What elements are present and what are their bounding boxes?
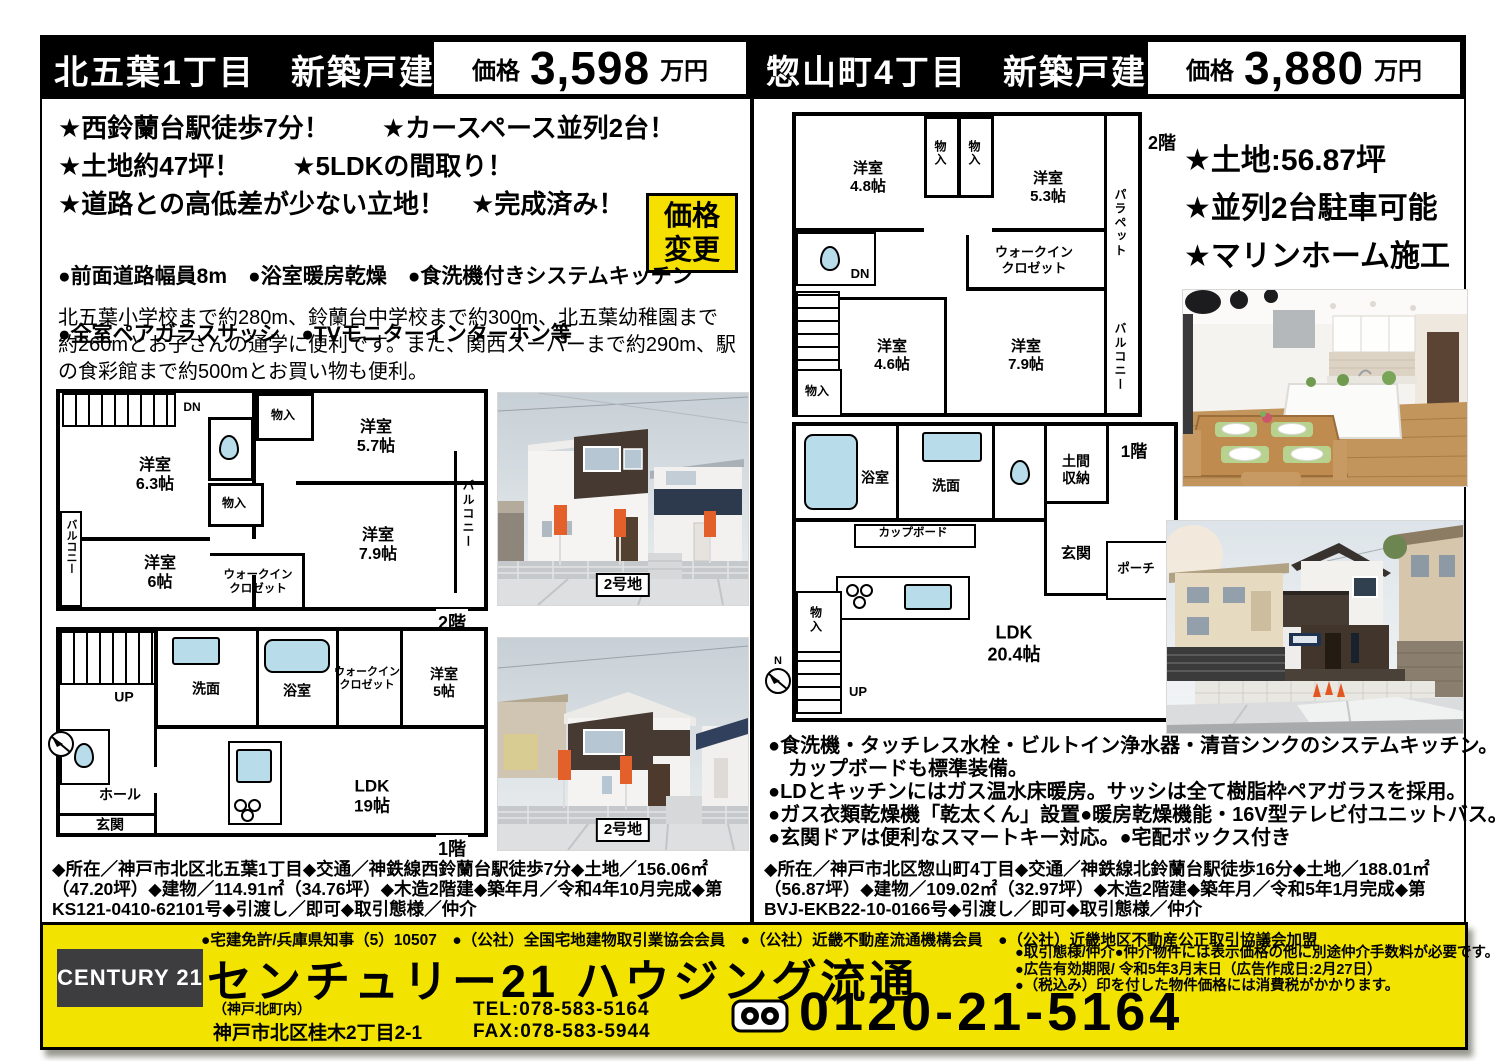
room-label: 洋室 4.6帖	[874, 338, 910, 374]
wall	[1044, 426, 1047, 518]
wall	[1104, 266, 1107, 413]
wall	[944, 297, 947, 413]
entrance-label: 玄関	[1061, 545, 1091, 563]
toilet-icon	[820, 246, 840, 271]
freedial-phone-icon	[731, 999, 789, 1033]
closet-label: 物入	[271, 408, 295, 422]
wall	[1104, 116, 1107, 266]
toilet-icon	[74, 743, 94, 768]
cupboard-label: カップボード	[879, 527, 948, 541]
right-property-title: 惣山町4丁目 新築戸建	[766, 45, 1147, 94]
toilet-icon	[219, 435, 239, 460]
price-unit: 万円	[660, 51, 708, 86]
room-label: 洋室 5.7帖	[357, 418, 395, 456]
price-label: 価格	[472, 51, 520, 86]
balcony-label: バルコニー	[460, 479, 477, 549]
left-exterior-photo-2: 2号地	[497, 637, 749, 851]
porch-label: ポーチ	[1117, 562, 1155, 577]
company-address: 神戸市北区桂木2丁目2-1	[213, 1018, 422, 1045]
toilet-icon	[1010, 460, 1030, 485]
wall	[400, 631, 403, 725]
bathtub	[264, 639, 330, 673]
bullet-line: ●LDとキッチンにはガス温水床暖房。サッシは全て樹脂枠ペアガラスを採用。	[768, 781, 1500, 804]
wall	[154, 631, 158, 725]
kitchen-sink	[904, 584, 952, 610]
freedial-number: 0120-21-5164	[799, 985, 1183, 1039]
right-1f-floorplan: 浴室 洗面 土間 収納 1階 カップボード 玄関 ポーチ 物 入 UP LDK …	[792, 422, 1178, 722]
exterior-photo-svg	[1167, 521, 1463, 733]
lot-number-label: 2号地	[596, 818, 650, 842]
wall	[154, 729, 157, 767]
floor-label-1f: 1階	[436, 835, 468, 861]
parapet-label: パラペット	[1112, 188, 1129, 258]
closet-label: 物 入	[810, 606, 822, 635]
left-property-panel: 北五葉1丁目 新築戸建 価格 3,598 万円 ★西鈴蘭台駅徒歩7分！ ★カース…	[40, 35, 752, 924]
stove-burner	[860, 584, 873, 597]
wall	[966, 287, 1104, 291]
stairs-up-label: UP	[114, 689, 133, 706]
wall	[840, 297, 944, 300]
ldk-label: LDK 20.4帖	[987, 622, 1040, 665]
right-features: ★土地:56.87坪 ★並列2台駐車可能 ★マリンホーム施工	[1184, 137, 1450, 281]
left-2f-floorplan: DN 物入 物入 洋室 6.3帖 洋室 5.7帖 洋室 6帖 洋室 7.9帖 ウ…	[56, 389, 488, 611]
stairs-down-label: DN	[851, 266, 870, 282]
floor-label-1f-inline: 1階	[1121, 442, 1147, 462]
company-branch: （神戸北町内）	[213, 999, 311, 1019]
right-exterior-photo	[1166, 520, 1464, 734]
feature-line: ★西鈴蘭台駅徒歩7分！ ★カースペース並列2台！	[58, 109, 675, 147]
wall	[796, 518, 1047, 522]
bathtub	[804, 434, 858, 510]
wall	[992, 426, 995, 518]
tel-fax: TEL:078-583-5164 FAX:078-583-5944	[473, 999, 651, 1043]
right-details-text: ◆所在／神戸市北区惣山町4丁目◆交通／神鉄線北鈴蘭台駅徒歩16分◆土地／188.…	[764, 859, 1454, 919]
closet-label: 物入	[222, 496, 246, 510]
wall	[896, 426, 899, 518]
price-unit: 万円	[1374, 51, 1422, 86]
closet-label: 物入	[805, 384, 829, 398]
left-1f-floorplan: UP 洗面 浴室 ウォークイン クロゼット 洋室 5帖 ホール 玄関 LDK 1…	[56, 627, 488, 837]
feature-line: ★土地:56.87坪	[1184, 137, 1450, 185]
bullet-line: ●玄関ドアは便利なスマートキー対応。●宅配ボックス付き	[768, 827, 1500, 850]
feature-line: ★土地約47坪！ ★5LDKの間取り！	[58, 147, 675, 185]
right-bullets: ●食洗機・タッチレス水栓・ビルトイン浄水器・清音シンクのシステムキッチン。 カッ…	[768, 735, 1500, 850]
wall	[60, 813, 154, 816]
room-label: 洋室 7.9帖	[359, 526, 397, 564]
stove-burner	[241, 809, 254, 822]
sink	[172, 637, 220, 665]
left-property-title: 北五葉1丁目 新築戸建	[54, 45, 435, 94]
price-value: 3,880	[1244, 45, 1364, 91]
room-label: 洋室 5.3帖	[1030, 170, 1066, 206]
bath-label: 浴室	[861, 470, 889, 487]
price-value: 3,598	[530, 45, 650, 91]
room-label: 洋室 6.3帖	[136, 456, 174, 494]
floor-label-2f: 2階	[1146, 129, 1178, 155]
wic-label: ウォークイン クロゼット	[995, 244, 1073, 275]
flyer-page: 北五葉1丁目 新築戸建 価格 3,598 万円 ★西鈴蘭台駅徒歩7分！ ★カース…	[0, 0, 1500, 1061]
wic-label: ウォークイン クロゼット	[224, 569, 293, 597]
feature-line: ★道路との高低差が少ない立地！ ★完成済み！	[58, 185, 675, 223]
interior-photo-svg	[1183, 290, 1467, 486]
right-header-bar: 惣山町4丁目 新築戸建 価格 3,880 万円	[754, 37, 1464, 99]
doma-storage-label: 土間 収納	[1062, 453, 1090, 487]
washroom-label: 洗面	[192, 681, 220, 698]
feature-line: ★並列2台駐車可能	[1184, 185, 1450, 233]
left-exterior-photo-1: 2号地	[497, 392, 749, 606]
svg-text:N: N	[774, 655, 782, 667]
stairs	[62, 393, 176, 427]
note-line: ●取引態様/仲介●仲介物件には表示価格の他に別途仲介手数料が必要です。	[1015, 945, 1499, 962]
stairs	[60, 631, 158, 685]
balcony-label: バルコニー	[1112, 322, 1129, 392]
wic-label: ウォークイン クロゼット	[334, 666, 400, 692]
room-label: 洋室 5帖	[430, 666, 458, 700]
wall	[1044, 501, 1109, 504]
century21-logo: CENTURY 21	[57, 949, 203, 1007]
room-label: 洋室 4.8帖	[850, 160, 886, 196]
lot-number-label: 2号地	[596, 573, 650, 597]
left-price-box: 価格 3,598 万円	[434, 42, 746, 94]
wall	[154, 725, 484, 729]
washroom-label: 洗面	[932, 478, 960, 495]
right-price-box: 価格 3,880 万円	[1148, 42, 1460, 94]
bullet-line: ●食洗機・タッチレス水栓・ビルトイン浄水器・清音シンクのシステムキッチン。	[768, 735, 1500, 758]
stove-burner	[846, 584, 859, 597]
bullet-line: ●ガス衣類乾燥機「乾太くん」設置●暖房乾燥機能・16V型テレビ付ユニットバス。	[768, 804, 1500, 827]
footer-bar: ●宅建免許/兵庫県知事（5）10507 ●（公社）全国宅地建物取引業協会会員 ●…	[40, 922, 1468, 1050]
feature-line: ★マリンホーム施工	[1184, 233, 1450, 281]
left-description: 北五葉小学校まで約280m、鈴蘭台中学校まで約300m、北五葉幼稚園まで約260…	[58, 305, 736, 386]
bath-label: 浴室	[283, 683, 311, 700]
equipment-line: ●前面道路幅員8m ●浴室暖房乾燥 ●食洗機付きシステムキッチン	[58, 262, 693, 291]
wall	[154, 793, 157, 833]
wall	[992, 228, 1104, 232]
hall-label: ホール	[99, 787, 141, 804]
stairs-up-label: UP	[849, 684, 867, 700]
compass-icon	[46, 729, 76, 759]
wall	[966, 235, 969, 287]
wall	[302, 553, 305, 607]
wall	[256, 631, 259, 725]
right-interior-photo	[1182, 289, 1468, 487]
bullet-line: カップボードも標準装備。	[768, 758, 1500, 781]
closet-label: 物入	[932, 140, 949, 166]
kitchen-sink	[236, 749, 272, 783]
wall	[210, 553, 302, 556]
right-property-panel: 惣山町4丁目 新築戸建 価格 3,880 万円 洋室 4.8帖 物入 物入 洋室…	[752, 35, 1466, 924]
room-label: 洋室 6帖	[144, 554, 176, 592]
stove-burner	[853, 596, 866, 609]
sink	[922, 432, 982, 462]
wall	[1044, 522, 1047, 596]
compass-icon: N	[762, 653, 794, 699]
wall	[60, 537, 210, 541]
room-label: 洋室 7.9帖	[1008, 338, 1044, 374]
balcony-label: バルコニー	[63, 519, 79, 574]
stairs-down-label: DN	[183, 400, 200, 414]
price-label: 価格	[1186, 51, 1234, 86]
wall	[1106, 426, 1109, 504]
wall	[454, 451, 457, 593]
closet-label: 物入	[966, 140, 983, 166]
right-2f-floorplan: 洋室 4.8帖 物入 物入 洋室 5.3帖 パラペット DN ウォークイン クロ…	[792, 112, 1142, 417]
entrance-label: 玄関	[96, 817, 124, 834]
ldk-label: LDK 19帖	[354, 777, 390, 818]
stairs	[796, 651, 842, 714]
note-line: ●広告有効期限/ 令和5年3月末日（広告作成日:2月27日）	[1015, 962, 1499, 979]
left-header-bar: 北五葉1丁目 新築戸建 価格 3,598 万円	[42, 37, 750, 99]
left-details-text: ◆所在／神戸市北区北五葉1丁目◆交通／神鉄線西鈴蘭台駅徒歩7分◆土地／156.0…	[52, 859, 742, 919]
left-features: ★西鈴蘭台駅徒歩7分！ ★カースペース並列2台！ ★土地約47坪！ ★5LDKの…	[58, 109, 675, 223]
